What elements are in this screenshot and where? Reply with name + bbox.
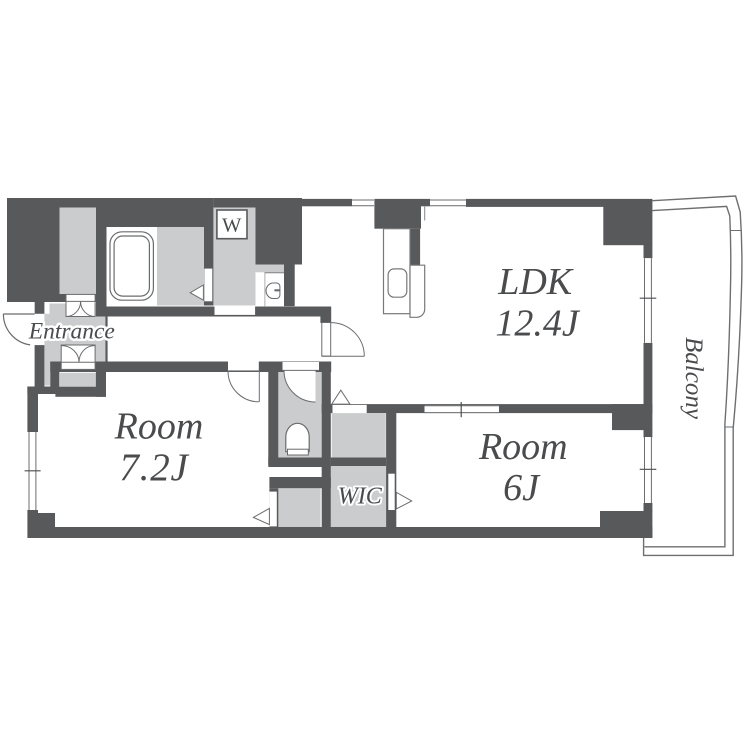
svg-text:WIC: WIC <box>338 484 383 510</box>
svg-text:Balcony: Balcony <box>680 337 707 420</box>
svg-text:LDK: LDK <box>497 261 574 303</box>
svg-text:12.4J: 12.4J <box>495 303 581 345</box>
svg-text:7.2J: 7.2J <box>119 446 189 489</box>
svg-text:6J: 6J <box>503 467 541 509</box>
svg-text:Room: Room <box>114 405 204 447</box>
svg-text:Room: Room <box>478 426 568 468</box>
svg-text:Entrance: Entrance <box>28 318 115 344</box>
svg-text:W: W <box>222 215 242 237</box>
